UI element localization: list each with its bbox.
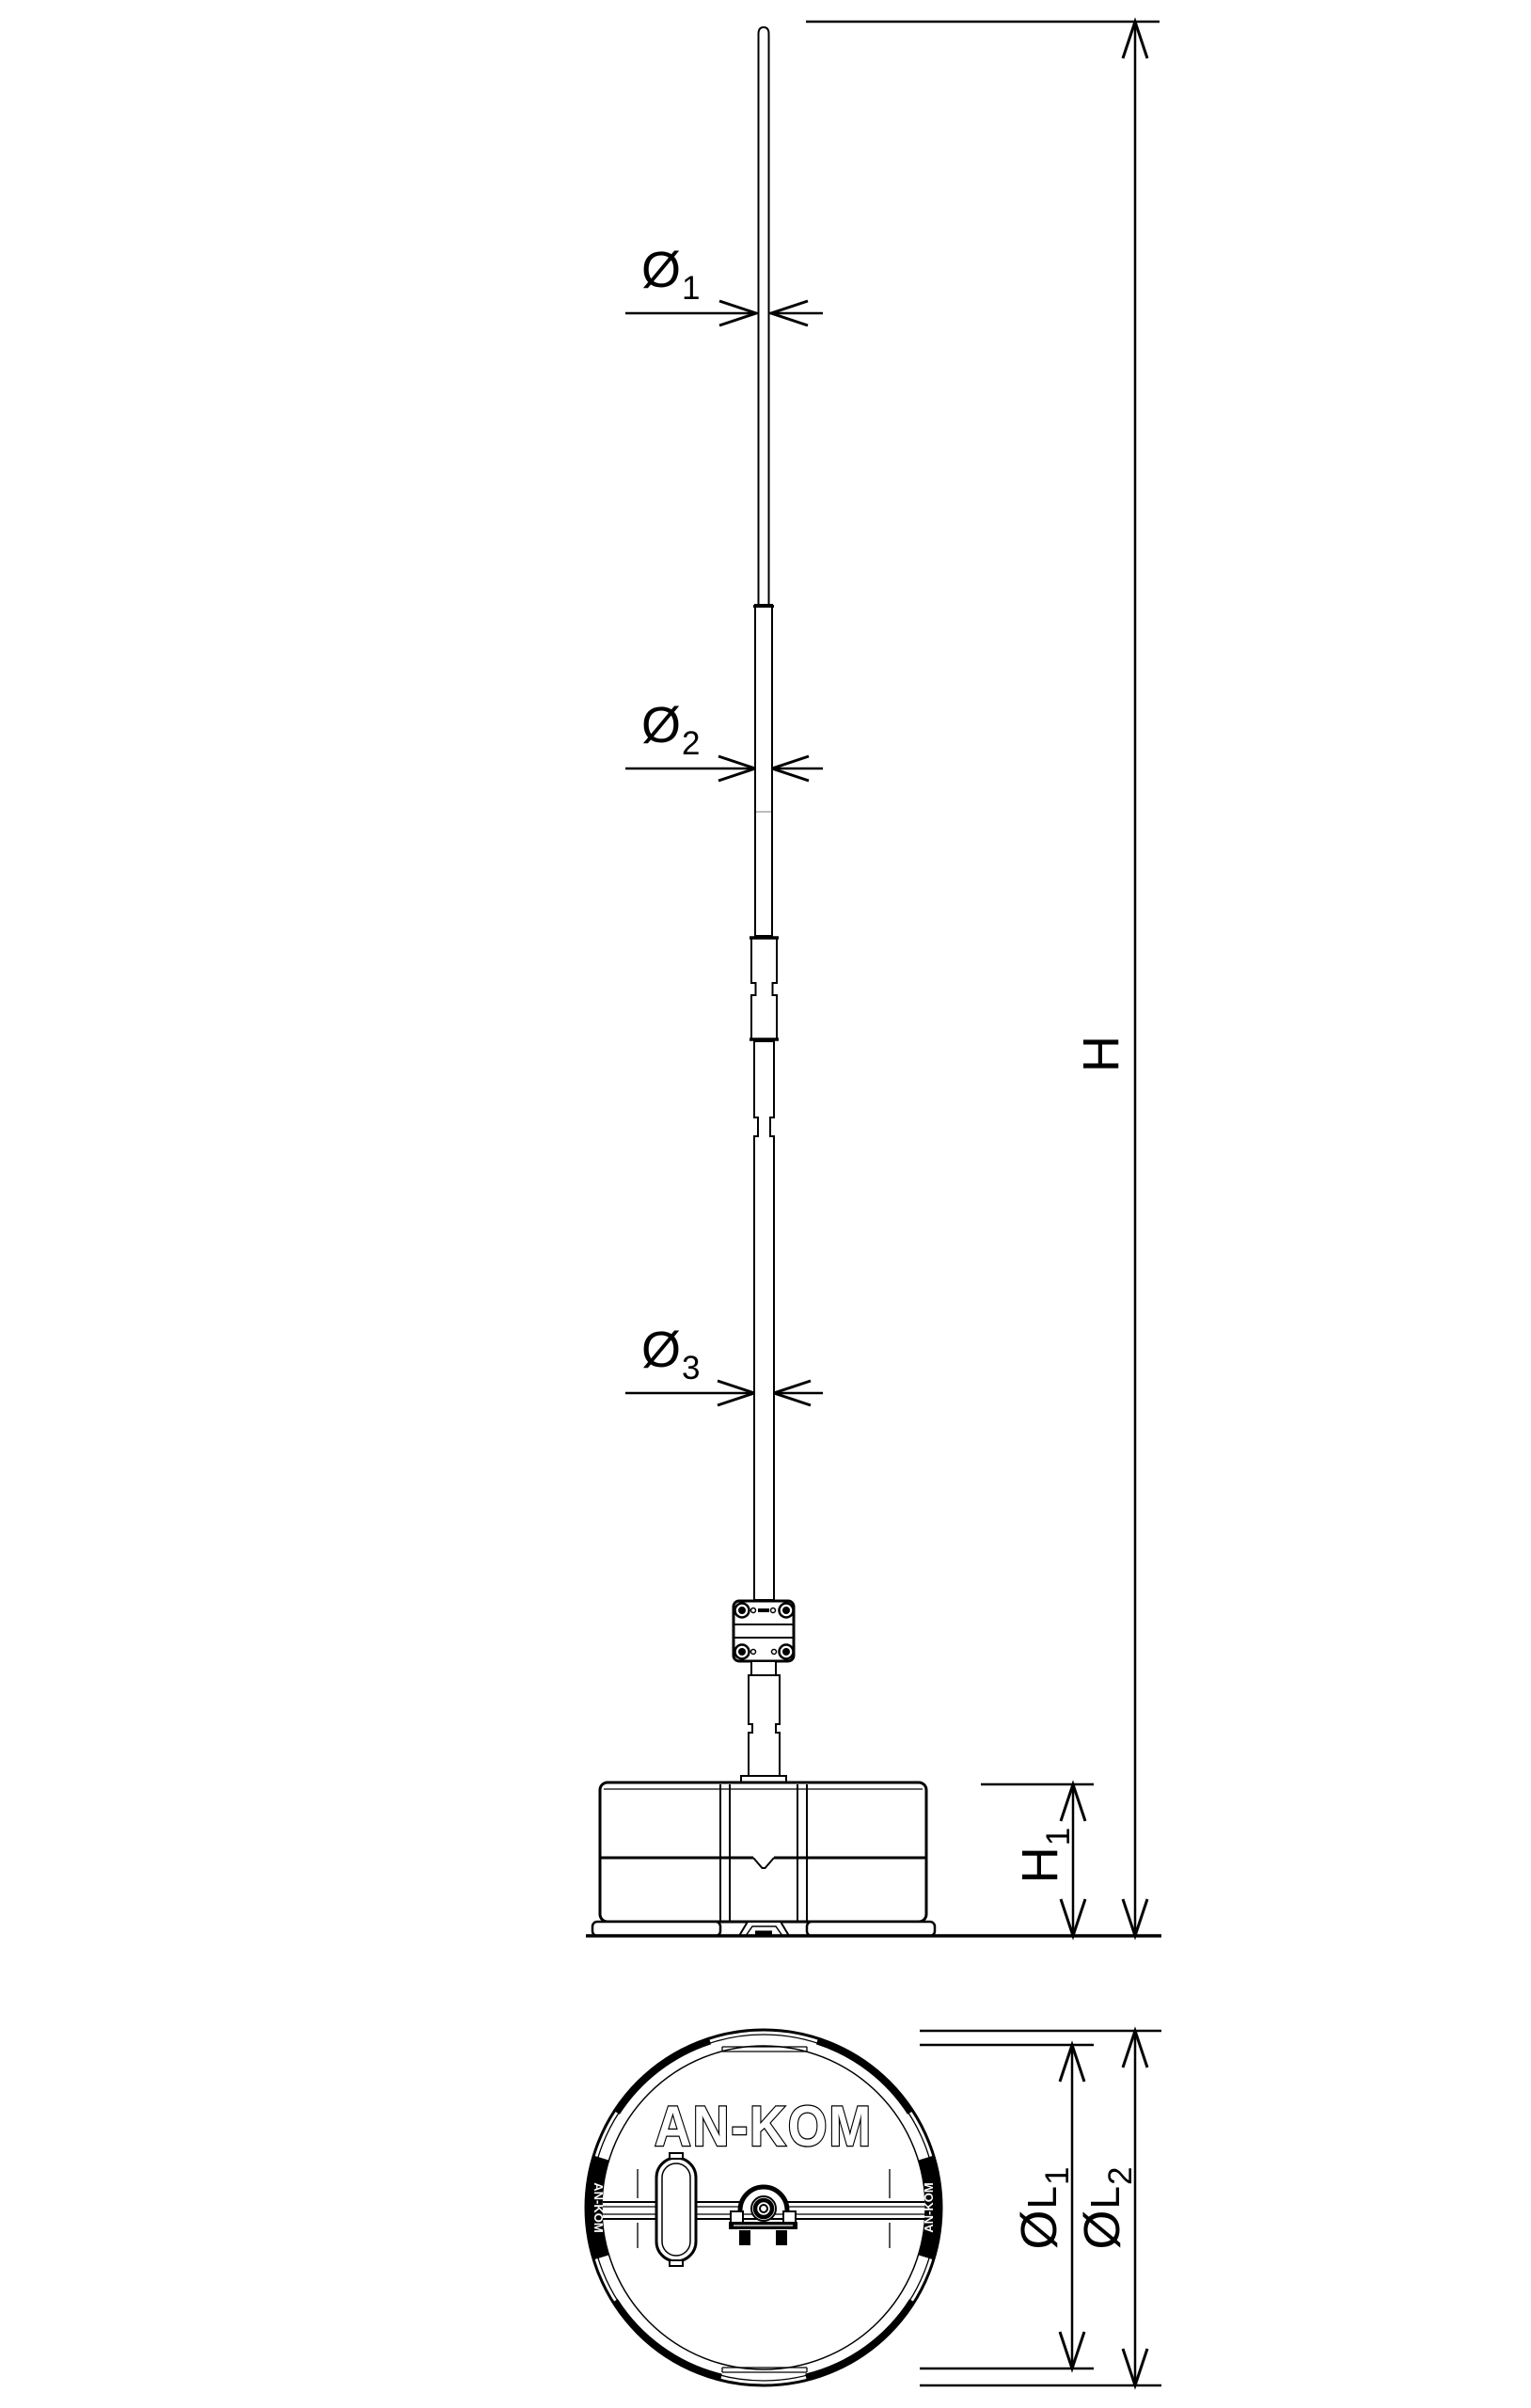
- dia2-symbol: Ø: [641, 697, 682, 753]
- dia2-subscript: 2: [682, 725, 701, 762]
- mast-joint-collar: [751, 938, 777, 1039]
- hub-pin: [760, 2205, 767, 2212]
- carry-handle: [656, 2153, 696, 2266]
- base-top-view: AN-KOM AN-KOM AN-KOM: [586, 2030, 941, 2385]
- brand-right-badge-text: AN-KOM: [922, 2182, 936, 2232]
- mast-section-2: [755, 605, 772, 936]
- dia3-subscript: 3: [682, 1350, 701, 1386]
- hub-tab-left: [731, 2211, 743, 2223]
- mast-lower-tube: [749, 1675, 780, 1777]
- base-dia2-letter: L: [1082, 2185, 1129, 2209]
- base-dia1-letter: L: [1019, 2185, 1065, 2209]
- base-dia2-subscript: 2: [1102, 2166, 1139, 2185]
- base-dia1-subscript: 1: [1039, 2166, 1076, 2185]
- height1-subscript: 1: [1040, 1827, 1077, 1846]
- dim-label-base-dia2: ØL2: [1077, 2166, 1137, 2250]
- dim-label-height1: H1: [1015, 1827, 1075, 1883]
- dia1-subscript: 1: [682, 270, 701, 307]
- height1-symbol: H: [1012, 1846, 1068, 1883]
- mast-clamp: [734, 1601, 794, 1661]
- clamp-bolt-top-left: [735, 1604, 750, 1618]
- clamp-slot: [758, 1608, 769, 1612]
- base-body: [600, 1782, 926, 1922]
- handle-bottom-tab: [670, 2260, 683, 2266]
- clamp-bolt-bottom-left: [735, 1645, 750, 1659]
- base-foot-left: [592, 1922, 720, 1936]
- mast-section-1: [759, 27, 769, 605]
- dim-label-height: H: [1076, 1035, 1136, 1072]
- dim-label-dia3: Ø3: [641, 1324, 701, 1385]
- mast-drawing: AN-KOM AN-KOM AN-KOM: [0, 0, 1531, 2408]
- clamp-bolt-top-right: [780, 1604, 794, 1618]
- mast-section-3: [754, 1041, 774, 1600]
- base-front-view: [586, 1782, 1161, 1936]
- dim-label-base-dia1: ØL1: [1014, 2166, 1074, 2250]
- dim-height: [806, 22, 1160, 1936]
- brand-left-badge-text: AN-KOM: [592, 2182, 606, 2232]
- base-dia1-symbol: Ø: [1011, 2209, 1067, 2249]
- height-symbol: H: [1073, 1035, 1129, 1072]
- mast-neck: [751, 1661, 776, 1675]
- base-foot-right: [807, 1922, 935, 1936]
- base-dia2-symbol: Ø: [1074, 2209, 1130, 2249]
- hub-tab-right: [783, 2211, 796, 2223]
- hub-foot-right: [776, 2230, 787, 2245]
- mast: [750, 27, 779, 1600]
- clamp-bolt-bottom-right: [780, 1645, 794, 1659]
- dim-label-dia2: Ø2: [641, 700, 701, 760]
- brand-center-logo-text: AN-KOM: [655, 2095, 873, 2158]
- dia1-symbol: Ø: [641, 242, 682, 298]
- hub-foot-left: [739, 2230, 750, 2245]
- technical-drawing-page: AN-KOM AN-KOM AN-KOM Ø1 Ø2 Ø3 H H1 ØL1 Ø…: [0, 0, 1531, 2408]
- dim-label-dia1: Ø1: [641, 245, 701, 305]
- dia3-symbol: Ø: [641, 1322, 682, 1378]
- mast-foot: [741, 1661, 786, 1783]
